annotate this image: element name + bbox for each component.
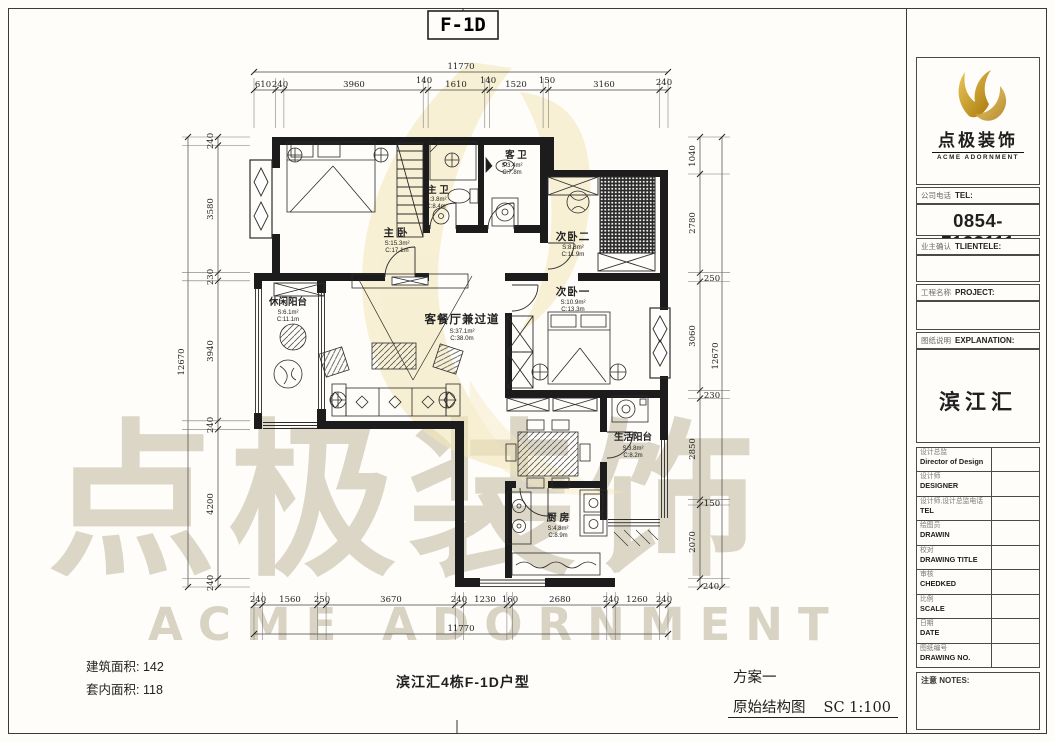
notes-label: 注意 NOTES: (917, 673, 1039, 686)
unit-label: F-1D (440, 14, 486, 36)
client-label-row: 业主确认TLIENTELE: (916, 238, 1040, 255)
dim: 2780 (688, 212, 698, 234)
plan-title: 滨江汇4栋F-1D户型 (396, 672, 530, 692)
project-label-en: PROJECT: (955, 288, 995, 297)
room-name: 客餐厅兼过道 (424, 312, 500, 326)
dim: 240 (451, 595, 467, 605)
dim: 240 (206, 133, 216, 149)
row-drawing-no: 图纸编号DRAWING NO. (917, 644, 1039, 667)
row-checked: 审核CHEDKED (917, 570, 1039, 594)
room-name: 主卧 (384, 226, 411, 239)
room-area: S:8.8m² (562, 244, 584, 251)
signature-rows: 设计总监Director of Design 设计师DESIGNER 设计师,设… (916, 447, 1040, 668)
row-label-en: Director of Design (920, 457, 991, 466)
dim: 240 (656, 595, 672, 605)
row-label-cn: 比例 (920, 596, 991, 604)
dim: 1260 (626, 595, 648, 605)
dim-bottom-segments: 240 1560 250 3670 240 1230 160 2680 240 … (250, 595, 672, 605)
row-scale: 比例SCALE (917, 595, 1039, 619)
dim: 3960 (343, 80, 365, 90)
room-name: 客 卫 (504, 149, 527, 161)
client-label-en: TLIENTELE: (955, 242, 1001, 251)
floorplan-svg: F-1D (0, 0, 905, 742)
dim: 610 (255, 80, 271, 90)
building-area-label: 建筑面积: (86, 660, 139, 674)
drawing-name: 原始结构图 (733, 700, 806, 716)
tel-label-row: 公司电话TEL: (916, 187, 1040, 204)
row-proofread: 校对DRAWING TITLE (917, 546, 1039, 570)
row-label-cn: 设计师,设计总监电话 (920, 498, 991, 506)
dim: 2680 (549, 595, 571, 605)
tatami-mat (600, 177, 655, 253)
dim: 4200 (206, 493, 216, 515)
room-name: 主 卫 (427, 184, 449, 196)
dim: 240 (703, 582, 719, 592)
row-label-en: SCALE (920, 604, 991, 613)
dim: 240 (206, 417, 216, 433)
dim: 1040 (688, 145, 698, 167)
building-area-line: 建筑面积: 142 (86, 656, 164, 675)
bed-bedroom-one (532, 312, 626, 384)
room-perimeter: C:8.9m (548, 533, 567, 539)
explanation-label-row: 图纸说明EXPLANATION: (916, 332, 1040, 349)
row-label-cn: 设计总监 (920, 449, 991, 457)
inner-area-value: 118 (143, 683, 163, 697)
row-label-en: DESIGNER (920, 481, 991, 490)
row-label-en: CHEDKED (920, 579, 991, 588)
row-value (992, 619, 1039, 642)
room-area: S:15.3m² (384, 240, 409, 247)
row-value (992, 448, 1039, 471)
dim: 1610 (445, 80, 467, 90)
room-area: S:10.9m² (560, 299, 585, 306)
dim-bottom-total: 11770 (447, 624, 474, 634)
row-label-cn: 日期 (920, 620, 991, 628)
room-perimeter: C:38.0m (450, 335, 473, 342)
dim: 230 (206, 269, 216, 285)
dim: 1520 (505, 80, 527, 90)
row-value (992, 570, 1039, 593)
dim: 1560 (279, 595, 301, 605)
inner-area-line: 套内面积: 118 (86, 679, 163, 698)
row-label-cn: 设计师 (920, 473, 991, 481)
room-perimeter: C:11.9m (562, 251, 585, 258)
dim: 240 (206, 575, 216, 591)
dim: 150 (704, 499, 720, 509)
drawing-name-underline (728, 717, 898, 718)
dim: 250 (314, 595, 330, 605)
row-design-director: 设计总监Director of Design (917, 448, 1039, 472)
washing-machine (612, 396, 648, 422)
row-label-en: DRAWING TITLE (920, 555, 991, 564)
room-name: 厨 房 (547, 511, 570, 524)
scheme-label: 方案一 (733, 666, 777, 687)
dim: 250 (704, 274, 720, 284)
project-name-box: 滨江汇 (916, 349, 1040, 443)
room-area: S:37.1m² (449, 328, 474, 335)
dim: 160 (502, 595, 518, 605)
dim-top-total: 11770 (447, 62, 474, 72)
brand-logo-icon (917, 62, 1041, 124)
dim: 3580 (206, 198, 216, 220)
dim: 2850 (688, 438, 698, 460)
bed-master (287, 142, 375, 212)
dim: 150 (539, 76, 555, 86)
row-value (992, 546, 1039, 569)
inner-area-label: 套内面积: (86, 683, 139, 697)
explanation-label-cn: 图纸说明 (921, 336, 951, 345)
tel-label-en: TEL: (955, 191, 973, 200)
project-label-row: 工程名称PROJECT: (916, 284, 1040, 301)
room-name: 次卧一 (556, 285, 591, 298)
dim: 2070 (688, 531, 698, 553)
brand-name-cn: 点极装饰 (917, 126, 1039, 151)
unit-label-box: F-1D (428, 8, 498, 39)
row-label-cn: 校对 (920, 547, 991, 555)
dim: 140 (480, 76, 496, 86)
row-label-en: DATE (920, 628, 991, 637)
row-label-en: DRAWIN (920, 530, 991, 539)
row-label-cn: 审核 (920, 571, 991, 579)
room-label-kitchen: 厨 房 S:4.8m² C:8.9m (547, 511, 570, 539)
room-label-bedroom-one: 次卧一 S:10.9m² C:13.3m (556, 285, 591, 313)
dim: 140 (416, 76, 432, 86)
client-value-box (916, 255, 1040, 282)
dim: 3940 (206, 340, 216, 362)
dim: 240 (272, 80, 288, 90)
dim-left-segments: 240 3580 230 3940 240 4200 240 (206, 133, 216, 591)
drawing-sheet: 点极装饰 ACME ADORNMENT F-1D (0, 0, 1055, 742)
leisure-balcony-furniture (274, 324, 306, 388)
dim: 240 (656, 78, 672, 88)
room-area: S:3.4m² (501, 163, 522, 169)
row-designer-tel: 设计师,设计总监电话TEL (917, 497, 1039, 521)
room-perimeter: C:8.4m (426, 204, 445, 210)
row-draftsman: 绘图员DRAWIN (917, 521, 1039, 545)
room-perimeter: C:8.2m (623, 453, 642, 459)
dim: 240 (603, 595, 619, 605)
dim: 3160 (593, 80, 615, 90)
dim-right-total: 12670 (711, 342, 721, 369)
room-label-leisure-balcony: 休闲阳台 S:6.1m² C:11.1m (268, 296, 308, 323)
room-area: S:3.8m² (622, 446, 643, 452)
client-label-cn: 业主确认 (921, 242, 951, 251)
coffee-table (372, 343, 416, 369)
title-block-separator (906, 8, 907, 733)
row-value (992, 472, 1039, 495)
room-name: 休闲阳台 (268, 296, 308, 308)
tel-label-cn: 公司电话 (921, 191, 951, 200)
dim: 1230 (474, 595, 496, 605)
room-perimeter: C:17.1m (385, 247, 408, 254)
row-label-cn: 图纸编号 (920, 645, 991, 653)
row-value (992, 644, 1039, 667)
row-value (992, 595, 1039, 618)
row-label-en: DRAWING NO. (920, 653, 991, 662)
room-perimeter: C:13.3m (561, 306, 584, 313)
room-perimeter: C:7.8m (502, 170, 521, 176)
room-label-master-bedroom: 主卧 S:15.3m² C:17.1m (384, 226, 411, 254)
dim: 3670 (380, 595, 402, 605)
room-perimeter: C:11.1m (277, 317, 299, 323)
dim: 3060 (688, 325, 698, 347)
room-name: 次卧二 (556, 230, 591, 243)
building-area-value: 142 (143, 660, 164, 674)
title-block: 点极装饰 ACME ADORNMENT 公司电话TEL: 0854-713311… (916, 57, 1042, 733)
row-designer: 设计师DESIGNER (917, 472, 1039, 496)
room-area: S:6.1m² (277, 310, 298, 316)
brand-name-en: ACME ADORNMENT (932, 152, 1024, 161)
row-value (992, 521, 1039, 544)
row-value (992, 497, 1039, 520)
room-area: S:3.8m² (425, 197, 446, 203)
project-name: 滨江汇 (917, 350, 1039, 416)
row-label-en: TEL (920, 506, 991, 515)
scale-text: SC 1:100 (824, 700, 891, 716)
dim: 230 (704, 391, 720, 401)
dim: 240 (250, 595, 266, 605)
project-value-box (916, 301, 1040, 330)
room-name: 生活阳台 (614, 431, 653, 443)
logo-box: 点极装饰 ACME ADORNMENT (916, 57, 1040, 185)
room-area: S:4.8m² (547, 526, 568, 532)
room-label-guest-bath: 客 卫 S:3.4m² C:7.8m (501, 149, 527, 176)
drawing-name-line: 原始结构图 SC 1:100 (733, 696, 891, 717)
phone-box: 0854-7133111 (916, 204, 1040, 236)
explanation-label-en: EXPLANATION: (955, 336, 1014, 345)
notes-box: 注意 NOTES: (916, 672, 1040, 730)
project-label-cn: 工程名称 (921, 288, 951, 297)
row-label-cn: 绘图员 (920, 522, 991, 530)
row-date: 日期DATE (917, 619, 1039, 643)
dim-left-total: 12670 (177, 348, 187, 375)
